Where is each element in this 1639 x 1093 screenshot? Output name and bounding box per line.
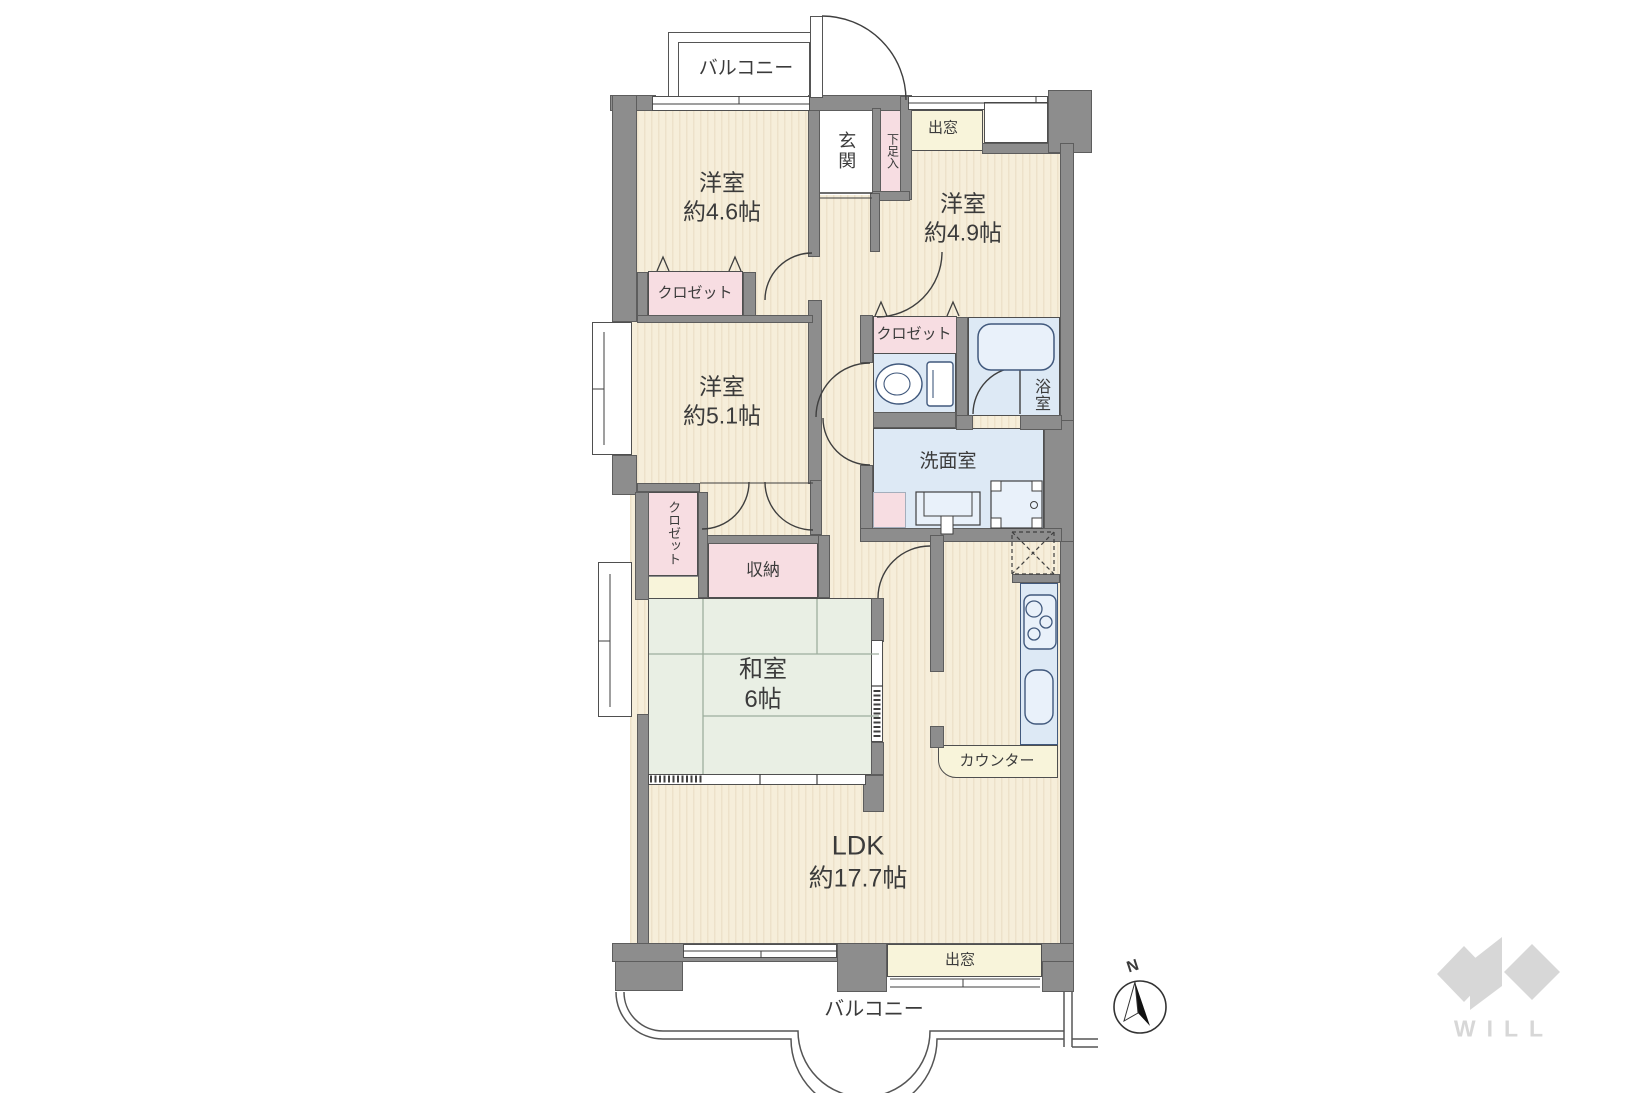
wall bbox=[637, 714, 649, 945]
room-51-name: 洋室 bbox=[683, 372, 761, 401]
closet-46-label: クロゼット bbox=[657, 285, 732, 304]
wall bbox=[872, 108, 881, 195]
wall bbox=[871, 598, 884, 642]
window-top-left bbox=[652, 96, 810, 111]
ldk-name: LDK bbox=[809, 830, 908, 864]
wall bbox=[956, 317, 968, 420]
entrance-side-wall bbox=[810, 16, 823, 98]
tokonoma-alcove bbox=[648, 576, 700, 599]
room-46-size: 約4.6帖 bbox=[683, 197, 761, 226]
wall bbox=[612, 455, 637, 495]
room-49-size: 約4.9帖 bbox=[924, 218, 1002, 247]
room-49-label: 洋室 約4.9帖 bbox=[924, 189, 1002, 247]
meter-box bbox=[984, 102, 1048, 143]
floor-plan-canvas: バルコニー 洋室 約4.6帖 玄関 下足入 出窓 洋室 約4.9帖 クロゼット … bbox=[0, 0, 1639, 1093]
wall bbox=[863, 775, 884, 812]
wall bbox=[637, 315, 813, 323]
compass-icon bbox=[1114, 981, 1166, 1033]
wall bbox=[808, 300, 822, 484]
ldk-label: LDK 約17.7帖 bbox=[809, 830, 908, 895]
kitchen-counter-area bbox=[1020, 583, 1058, 745]
room-49-name: 洋室 bbox=[924, 189, 1002, 218]
will-logo-text: WILL bbox=[1454, 1016, 1554, 1043]
wall bbox=[1020, 415, 1062, 430]
balcony-bottom-label: バルコニー bbox=[824, 998, 924, 1023]
japanese-room-label: 和室 6帖 bbox=[739, 655, 787, 715]
closet-51-label: クロゼット bbox=[665, 501, 681, 566]
japanese-room-name: 和室 bbox=[739, 655, 787, 685]
wall bbox=[870, 193, 880, 252]
balcony-top-label: バルコニー bbox=[699, 57, 794, 81]
wall bbox=[808, 95, 912, 111]
room-46-name: 洋室 bbox=[683, 168, 761, 197]
room-46-label: 洋室 約4.6帖 bbox=[683, 168, 761, 226]
ldk-size: 約17.7帖 bbox=[809, 863, 908, 894]
washroom-label: 洗面室 bbox=[919, 450, 976, 474]
wall bbox=[930, 726, 944, 748]
shoe-cabinet-label: 下足入 bbox=[885, 133, 900, 169]
toilet-room-area bbox=[873, 353, 956, 414]
washroom-pink-pan bbox=[873, 492, 906, 528]
wall bbox=[635, 492, 649, 600]
room-51-label: 洋室 約5.1帖 bbox=[683, 372, 761, 430]
entrance-label: 玄関 bbox=[835, 131, 858, 171]
wall bbox=[860, 315, 873, 363]
wall bbox=[1060, 143, 1074, 945]
wall bbox=[1012, 574, 1060, 583]
bay-window-top-label: 出窓 bbox=[928, 120, 958, 139]
wall bbox=[700, 535, 822, 544]
sliding-door-washitsu-bottom bbox=[648, 774, 866, 785]
wall bbox=[637, 483, 700, 492]
wall bbox=[900, 96, 912, 200]
window-left-51 bbox=[592, 322, 632, 455]
wall bbox=[808, 110, 820, 257]
wall bbox=[956, 415, 973, 430]
counter-label: カウンター bbox=[959, 753, 1034, 772]
window-left-washitsu bbox=[598, 562, 632, 717]
wall bbox=[1044, 420, 1074, 542]
compass-north-label: N bbox=[1124, 956, 1141, 979]
wall bbox=[637, 272, 648, 317]
will-logo-icon bbox=[1437, 937, 1560, 1010]
storage-label: 収納 bbox=[746, 559, 780, 580]
wall bbox=[871, 742, 884, 775]
wall bbox=[818, 535, 830, 598]
wall bbox=[873, 412, 956, 428]
wall bbox=[612, 95, 637, 322]
window-bottom-ldk bbox=[683, 944, 837, 958]
bathroom-label: 浴室 bbox=[1030, 378, 1050, 412]
wall bbox=[860, 528, 1062, 542]
wall bbox=[698, 492, 708, 598]
wall bbox=[743, 272, 756, 317]
wall bbox=[837, 943, 887, 992]
japanese-room-size: 6帖 bbox=[739, 685, 787, 715]
closet-49-label: クロゼット bbox=[876, 326, 951, 345]
sliding-door-washitsu-right bbox=[871, 640, 883, 742]
bay-window-bottom-label: 出窓 bbox=[945, 952, 975, 971]
room-51-size: 約5.1帖 bbox=[683, 401, 761, 430]
entrance-door-arc bbox=[822, 16, 906, 100]
wall bbox=[930, 535, 944, 672]
wall bbox=[810, 480, 822, 535]
